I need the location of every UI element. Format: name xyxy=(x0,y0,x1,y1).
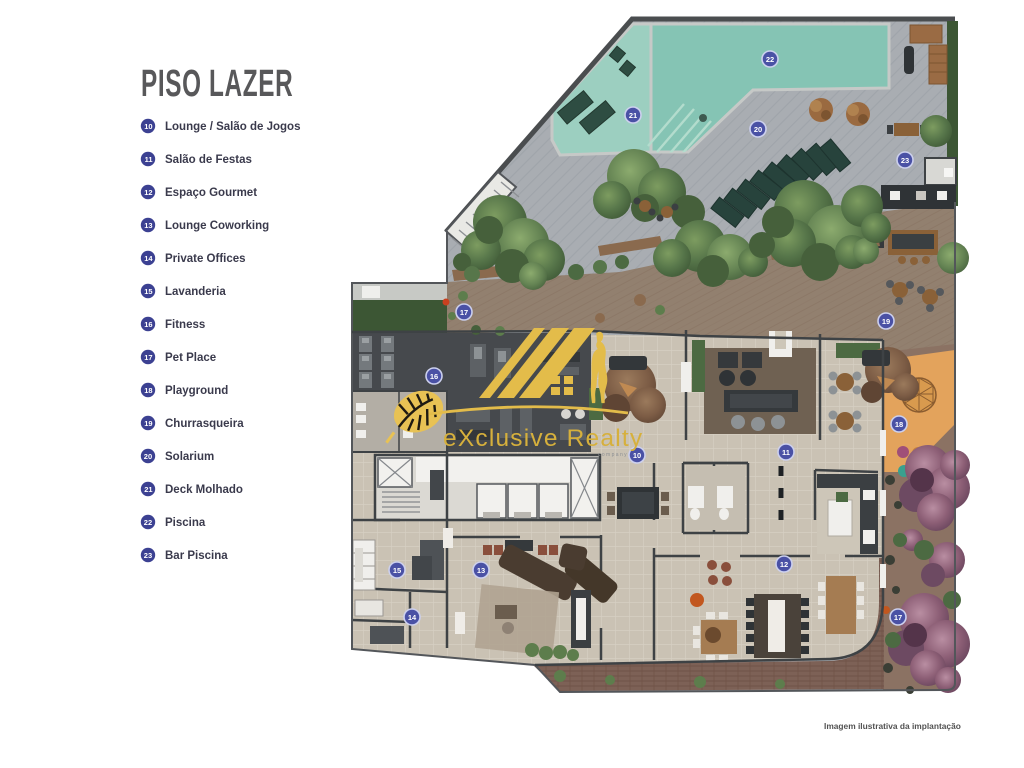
svg-text:11: 11 xyxy=(145,155,153,164)
svg-text:19: 19 xyxy=(144,419,152,428)
svg-text:Lavanderia: Lavanderia xyxy=(165,286,226,298)
svg-text:20: 20 xyxy=(144,452,152,461)
svg-text:13: 13 xyxy=(144,221,152,230)
svg-text:PISO LAZER: PISO LAZER xyxy=(141,61,293,104)
svg-text:Imagem ilustrativa da implanta: Imagem ilustrativa da implantação xyxy=(824,721,961,731)
svg-text:17: 17 xyxy=(460,308,468,317)
svg-text:23: 23 xyxy=(144,551,152,560)
svg-text:Piscina: Piscina xyxy=(165,517,206,529)
svg-text:Espaço Gourmet: Espaço Gourmet xyxy=(165,187,257,199)
svg-text:23: 23 xyxy=(901,156,909,165)
svg-text:21: 21 xyxy=(144,485,152,494)
svg-text:21: 21 xyxy=(629,111,637,120)
svg-text:Solarium: Solarium xyxy=(165,451,214,463)
svg-text:18: 18 xyxy=(144,386,152,395)
svg-text:13: 13 xyxy=(477,566,485,575)
svg-text:10: 10 xyxy=(633,451,641,460)
svg-text:eXclusive Realty: eXclusive Realty xyxy=(443,425,643,452)
svg-text:22: 22 xyxy=(766,55,774,64)
svg-text:18: 18 xyxy=(895,420,903,429)
svg-text:Salão de Festas: Salão de Festas xyxy=(165,154,252,166)
svg-text:16: 16 xyxy=(144,320,152,329)
svg-text:19: 19 xyxy=(882,317,890,326)
svg-text:15: 15 xyxy=(393,566,401,575)
svg-text:12: 12 xyxy=(144,188,152,197)
svg-text:17: 17 xyxy=(144,353,152,362)
svg-text:Bar Piscina: Bar Piscina xyxy=(165,550,228,562)
svg-text:Playground: Playground xyxy=(165,385,228,397)
svg-text:17: 17 xyxy=(894,613,902,622)
svg-text:Lounge Coworking: Lounge Coworking xyxy=(165,220,269,232)
svg-text:20: 20 xyxy=(754,125,762,134)
svg-text:11: 11 xyxy=(782,448,790,457)
svg-text:10: 10 xyxy=(144,122,152,131)
svg-text:14: 14 xyxy=(408,613,417,622)
svg-text:12: 12 xyxy=(780,560,788,569)
svg-text:Deck Molhado: Deck Molhado xyxy=(165,484,243,496)
svg-text:16: 16 xyxy=(430,372,438,381)
svg-text:Churrasqueira: Churrasqueira xyxy=(165,418,244,430)
svg-text:14: 14 xyxy=(144,254,153,263)
svg-text:15: 15 xyxy=(144,287,152,296)
svg-text:Fitness: Fitness xyxy=(165,319,205,331)
svg-text:c o m p a n y: c o m p a n y xyxy=(598,452,627,458)
svg-text:Lounge / Salão de Jogos: Lounge / Salão de Jogos xyxy=(165,121,300,133)
svg-text:Pet Place: Pet Place xyxy=(165,352,216,364)
svg-text:Private Offices: Private Offices xyxy=(165,253,246,265)
svg-text:22: 22 xyxy=(144,518,152,527)
